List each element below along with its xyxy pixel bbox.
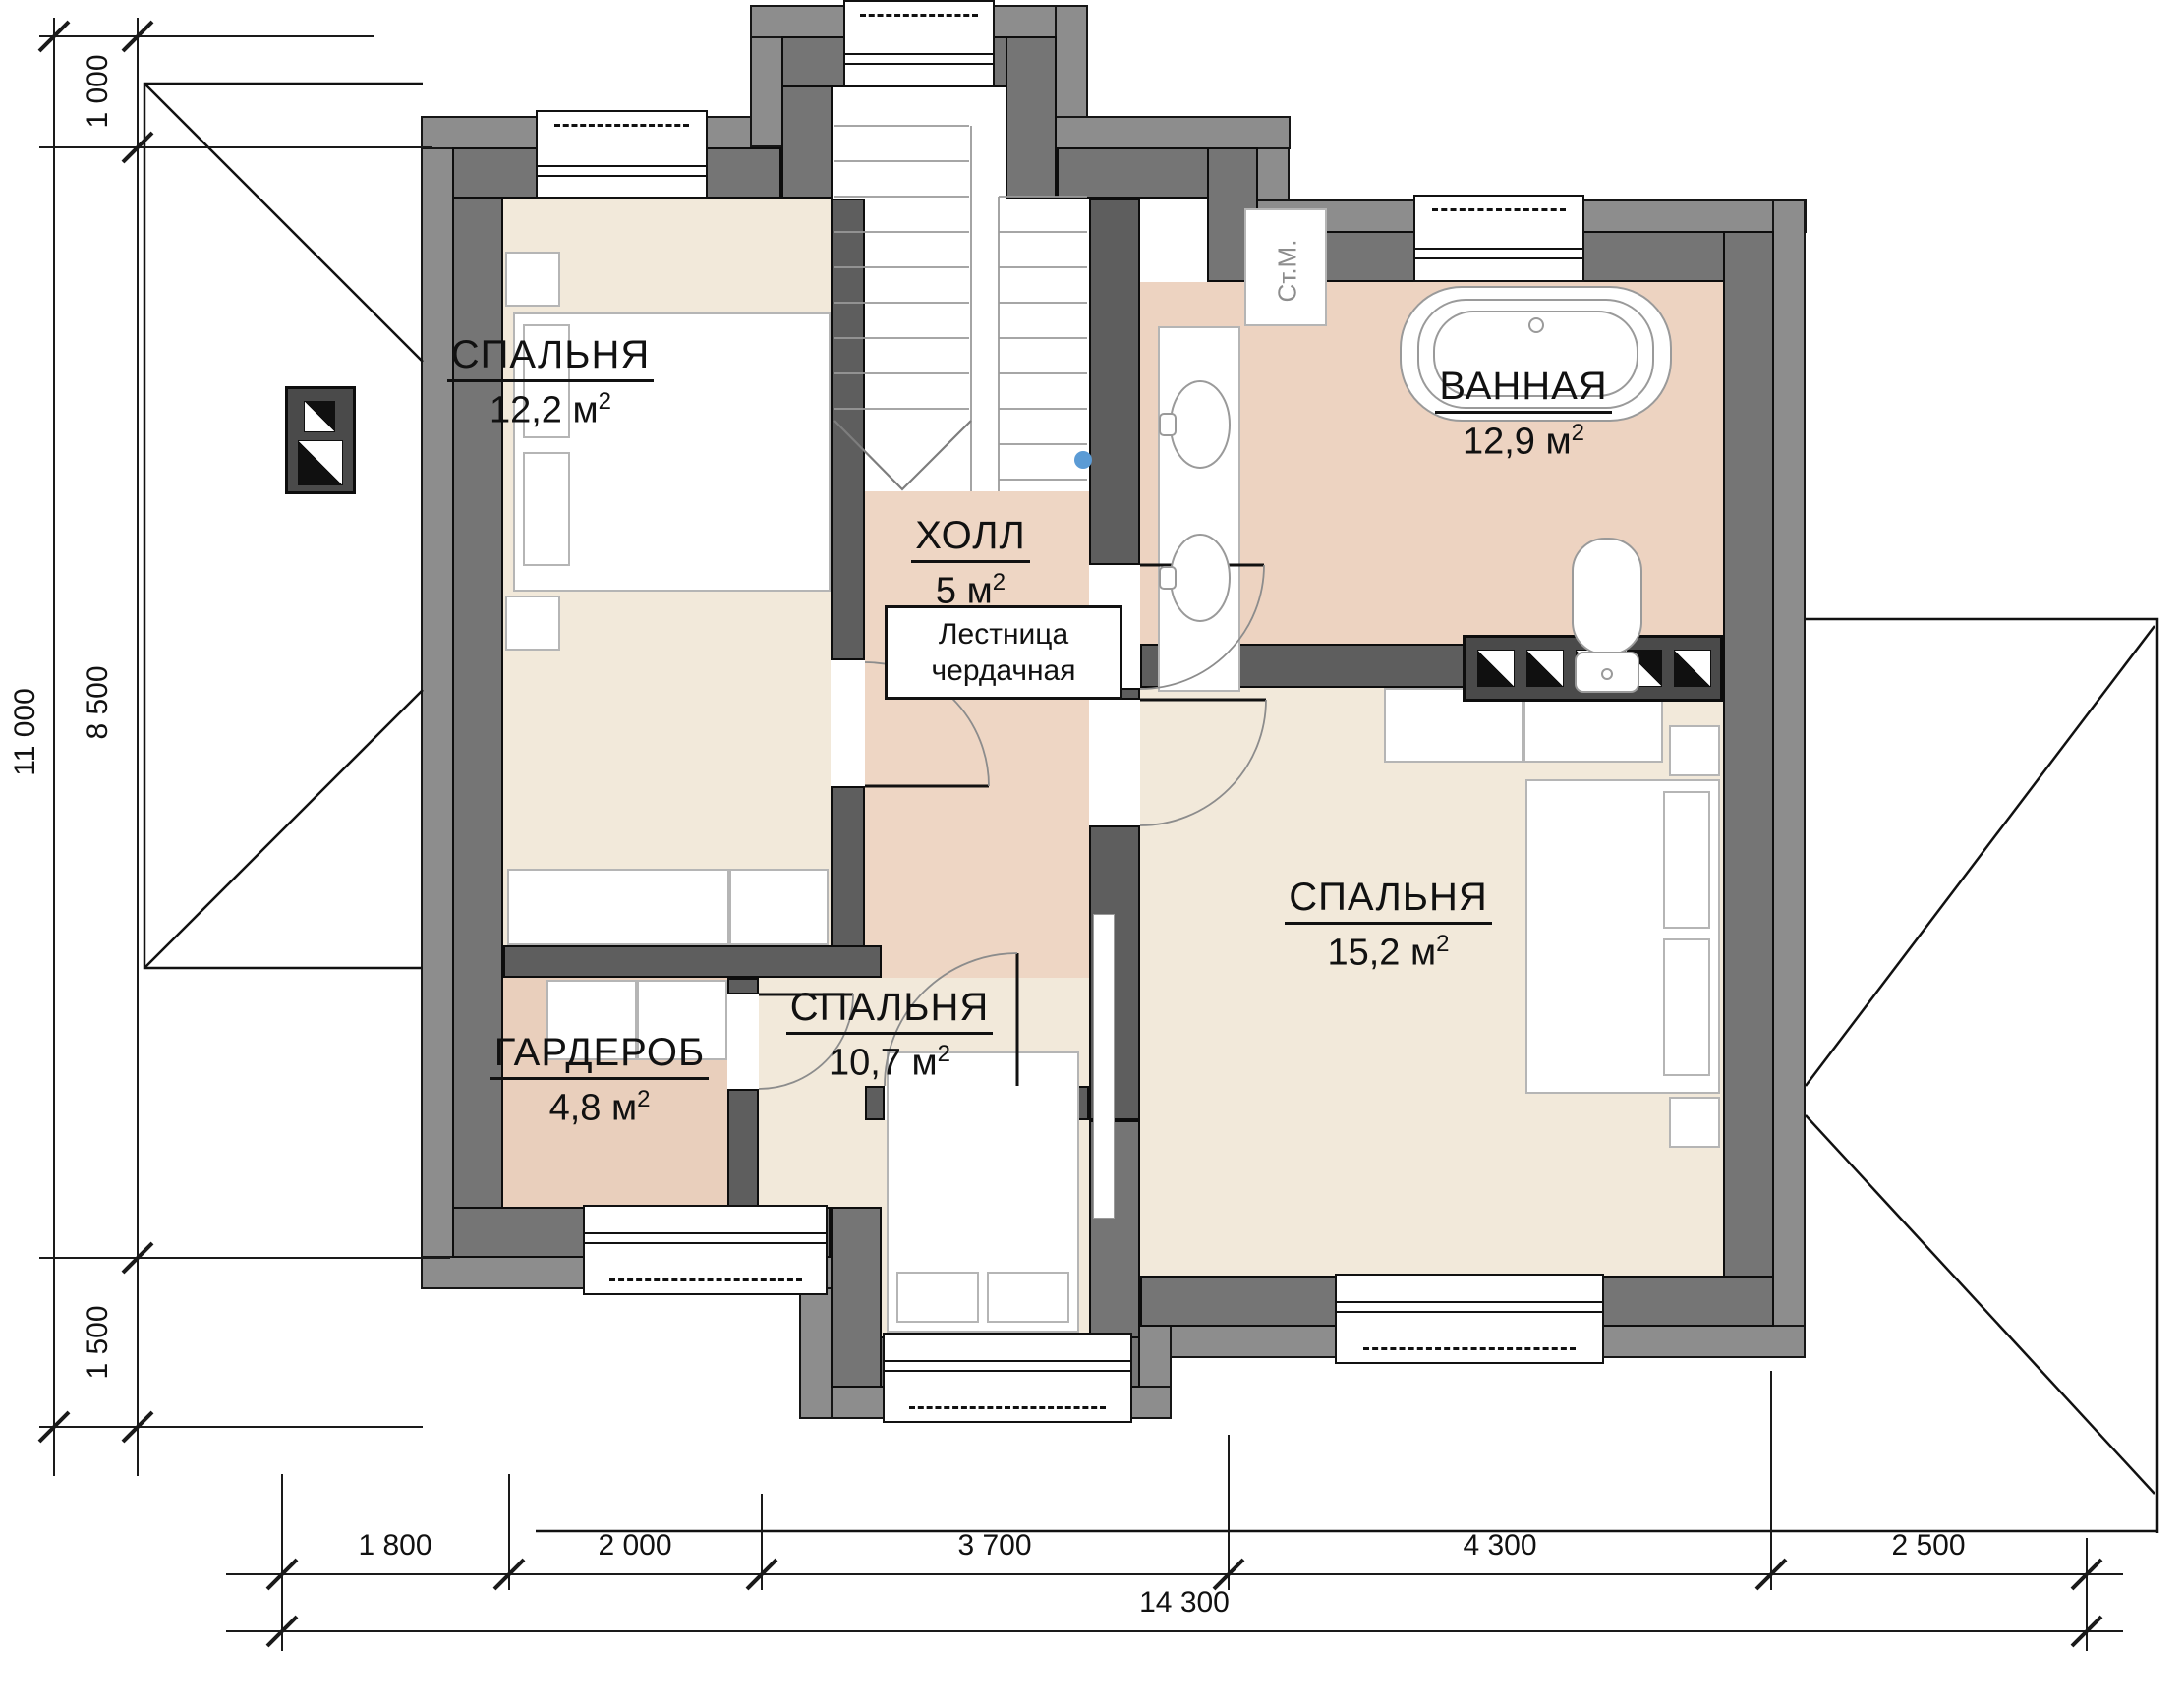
door-opening-bedroom12	[831, 660, 865, 786]
dim-bottom-seg-1800: 1 800	[316, 1529, 474, 1562]
dim-bottom-seg-4300: 4 300	[1421, 1529, 1579, 1562]
nightstand	[1669, 1097, 1720, 1148]
pillow	[987, 1272, 1069, 1323]
room-label-hall: ХОЛЛ 5 м2	[865, 513, 1076, 613]
chimney	[285, 386, 356, 494]
washing-machine: Ст.М.	[1244, 208, 1327, 326]
closet	[729, 869, 829, 945]
dim-bottom-seg-2500: 2 500	[1850, 1529, 2007, 1562]
closet	[507, 869, 729, 945]
wall-partition-bedroom12-wardrobe	[503, 945, 882, 978]
floor-stairwell-upper	[833, 87, 1006, 199]
wall-exterior-right	[1723, 231, 1774, 1327]
nightstand	[505, 252, 560, 307]
floor-plan-canvas: Ст.М.	[0, 0, 2184, 1704]
bathroom-counter	[1158, 326, 1240, 692]
dim-bottom-seg-3700: 3 700	[916, 1529, 1073, 1562]
door-opening-bedroom15	[1089, 700, 1140, 825]
dim-bottom-total: 14 300	[1096, 1586, 1273, 1619]
window-bedroom10	[883, 1333, 1132, 1423]
wall-exterior-bump-right	[1006, 36, 1057, 199]
wall-partition-bedroom12-hall	[831, 199, 865, 660]
dim-left-seg-8500: 8 500	[82, 644, 111, 762]
nightstand	[505, 596, 560, 651]
window-wardrobe	[583, 1205, 828, 1295]
wall-partition-hall-bathroom	[1089, 199, 1140, 565]
window-bedroom15	[1335, 1274, 1604, 1364]
roof-overhang	[1772, 199, 1806, 1358]
window-niche-bedroom15	[1093, 914, 1115, 1219]
room-label-bathroom: ВАННАЯ 12,9 м2	[1376, 364, 1671, 464]
vent-duct-block	[1463, 635, 1723, 702]
window-bedroom12	[536, 110, 708, 199]
room-label-bedroom-12: СПАЛЬНЯ 12,2 м2	[413, 332, 688, 432]
roof-overhang	[421, 116, 454, 1289]
dim-left-seg-1000: 1 000	[82, 32, 111, 150]
wall-exterior-bump2-left	[831, 1207, 882, 1388]
floor-stairwell	[833, 199, 1089, 491]
dim-bottom-seg-2000: 2 000	[556, 1529, 714, 1562]
window-stairwell	[843, 0, 995, 87]
dim-left-seg-1500: 1 500	[82, 1283, 111, 1401]
window-bathroom	[1413, 195, 1584, 282]
pillow	[896, 1272, 979, 1323]
room-label-bedroom-10: СПАЛЬНЯ 10,7 м2	[757, 985, 1022, 1085]
attic-ladder-note: Лестница чердачная	[885, 605, 1122, 700]
washing-machine-label: Ст.М.	[1273, 222, 1303, 320]
pillow	[1663, 938, 1710, 1076]
wall-partition-wardrobe-bedroom10	[727, 1089, 759, 1207]
pillow	[1663, 791, 1710, 929]
dim-left-total: 11 000	[9, 673, 38, 791]
nightstand	[1669, 725, 1720, 776]
door-opening-wardrobe	[727, 994, 759, 1089]
wall-partition-hall-bedroom10	[865, 1086, 885, 1120]
wall-partition-wardrobe-bedroom10	[727, 978, 759, 994]
room-label-wardrobe: ГАРДЕРОБ 4,8 м2	[472, 1030, 727, 1130]
pillow	[523, 452, 570, 566]
roof-overhang	[1055, 116, 1291, 149]
roof-outline-left	[144, 84, 423, 968]
room-label-bedroom-15: СПАЛЬНЯ 15,2 м2	[1248, 875, 1528, 975]
